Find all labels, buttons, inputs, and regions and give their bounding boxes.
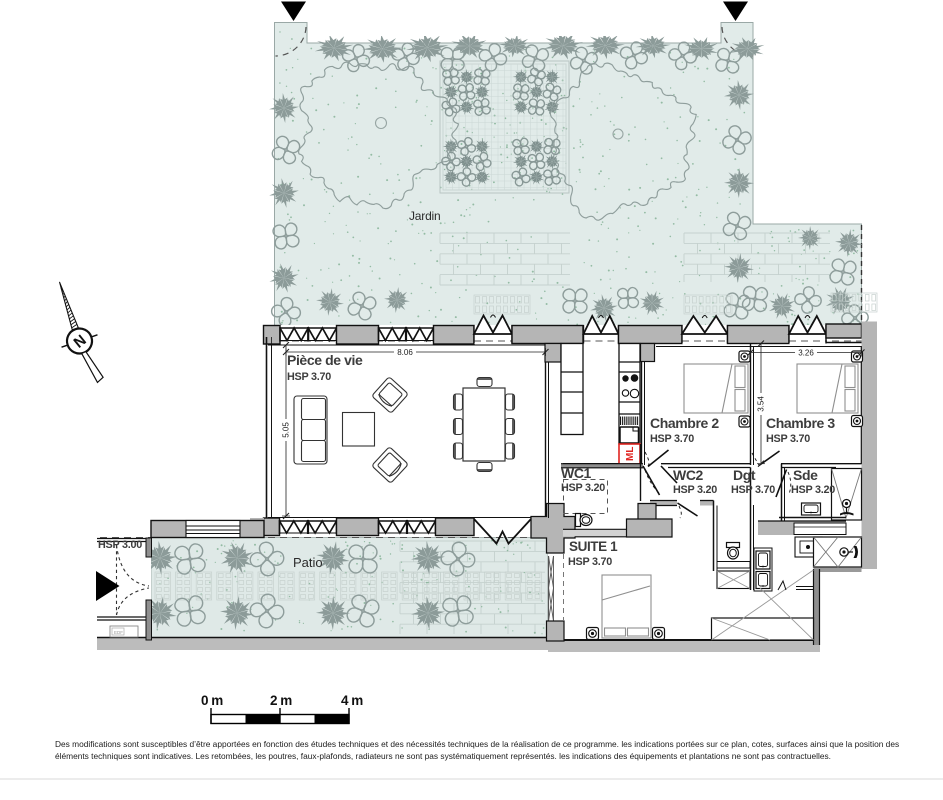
svg-text:HSP 3.70: HSP 3.70	[650, 433, 694, 445]
svg-text:Des modifications sont suscept: Des modifications sont susceptibles d’êt…	[55, 739, 899, 749]
svg-text:3.26: 3.26	[798, 348, 814, 357]
svg-text:HSP 3.70: HSP 3.70	[731, 484, 775, 496]
svg-text:8.06: 8.06	[397, 348, 413, 357]
svg-text:Chambre 3: Chambre 3	[766, 415, 835, 431]
svg-text:HSP 3.20: HSP 3.20	[561, 482, 605, 494]
svg-text:SUITE 1: SUITE 1	[569, 539, 618, 554]
svg-text:Patio: Patio	[293, 555, 323, 570]
svg-text:5.05: 5.05	[282, 422, 291, 438]
svg-text:HSP 3.20: HSP 3.20	[791, 484, 835, 496]
svg-text:HSP 3.70: HSP 3.70	[568, 556, 612, 568]
svg-text:HSP 3.00: HSP 3.00	[98, 539, 142, 551]
svg-text:3.54: 3.54	[757, 396, 766, 412]
svg-text:0 m: 0 m	[201, 693, 223, 708]
svg-text:Jardin: Jardin	[409, 209, 440, 223]
svg-text:HSP 3.70: HSP 3.70	[766, 433, 810, 445]
svg-text:Sde: Sde	[793, 467, 818, 483]
svg-text:éléments techniques sont indic: éléments techniques sont indicatives. Le…	[55, 751, 831, 761]
svg-text:2 m: 2 m	[270, 693, 292, 708]
svg-text:Pièce de vie: Pièce de vie	[287, 352, 363, 368]
svg-text:WC2: WC2	[673, 467, 704, 483]
svg-text:WC1: WC1	[561, 465, 592, 481]
svg-text:Chambre 2: Chambre 2	[650, 415, 719, 431]
svg-text:EDF: EDF	[114, 630, 123, 635]
svg-text:4 m: 4 m	[341, 693, 363, 708]
svg-text:Dgt: Dgt	[733, 467, 756, 483]
svg-text:ML: ML	[625, 447, 636, 461]
svg-text:HSP 3.20: HSP 3.20	[673, 484, 717, 496]
svg-text:HSP 3.70: HSP 3.70	[287, 371, 331, 383]
